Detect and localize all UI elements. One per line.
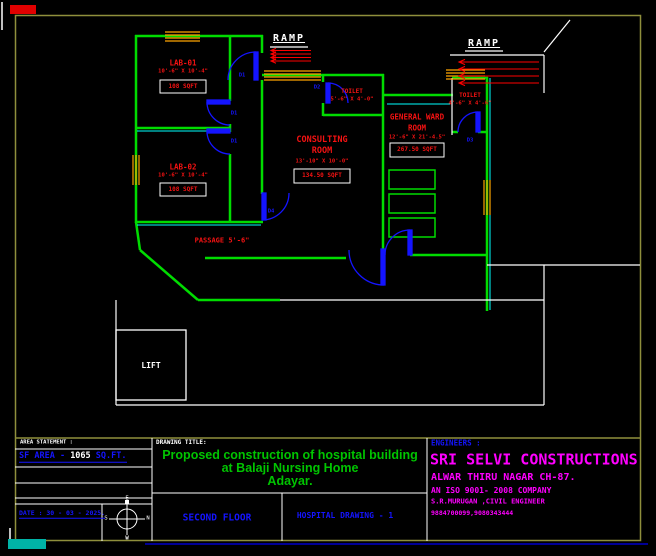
toilet-left-dims: 5'-6" X 4'-0" [330,97,373,103]
consulting-name-1: CONSULTING [296,136,347,145]
door-tag-d1b: D1 [231,139,238,145]
sf-area-value: 1065 [70,451,90,461]
ward-name-2: ROOM [408,124,426,132]
door-tag-d3: D3 [467,138,474,144]
sf-area-suffix: SQ.FT. [91,451,127,461]
drawing-title-label: DRAWING TITLE: [156,440,207,446]
door-tag-d1a: D1 [231,111,238,117]
floor-label: SECOND FLOOR [183,513,252,523]
door-tag-d2: D2 [314,85,321,91]
lab01-area: 108 SQFT [169,84,198,90]
lift-label: LIFT [141,362,160,370]
drawing-title-line1: Proposed construction of hospital buildi… [162,449,418,462]
plan-white-lines [116,20,640,405]
ramp2-label: RAMP [468,39,500,49]
lab01-dims: 10'-6" X 10'-4" [158,69,208,75]
company-phone: 9884700099,9080343444 [431,510,513,517]
engineers-label: ENGINEERS : [431,439,481,447]
consulting-name-2: ROOM [312,147,332,156]
consulting-dims: 13'-10" X 10'-0" [296,159,349,165]
compass-w-label: W [125,536,128,542]
company-iso: AN ISO 9001- 2008 COMPANY [431,487,551,495]
consulting-area: 134.50 SQFT [302,173,342,179]
toilet-right-dims: 4'-6" X 4'-6" [448,101,491,107]
compass-rose [109,500,145,535]
sf-area-prefix: SF AREA - [19,451,70,461]
compass-n-label: N [146,516,149,522]
toilet-left-name: TOILET [341,89,363,95]
passage-label: PASSAGE 5'-6" [195,238,250,245]
edge-artifact-lines [2,2,10,547]
sf-area-line: SF AREA - 1065 SQ.FT. [19,452,127,463]
lab02-dims: 10'-6" X 10'-4" [158,173,208,179]
ward-area: 267.50 SQFT [397,147,437,153]
cad-sheet: RAMP RAMP LAB-01 10'-6" X 10'-4" 108 SQF… [0,0,656,556]
toilet-right-name: TOILET [459,93,481,99]
compass-e-label: E [125,496,128,502]
area-statement-label: AREA STATEMENT : [20,440,73,446]
lab02-name: LAB-02 [169,163,196,171]
date-label: DATE : 30 - 03 - 2025. [19,510,105,519]
cyan-tag-marker [8,539,46,549]
company-engineer: S.R.MURUGAN ,CIVIL ENGINEER [431,499,545,506]
company-address: ALWAR THIRU NAGAR CH-87. [431,473,576,483]
ward-beds [389,170,435,237]
red-tag-marker [10,5,36,14]
lab02-area: 108 SQFT [169,187,198,193]
ward-dims: 12'-6" X 21'-4.5" [389,135,445,141]
company-name: SRI SELVI CONSTRUCTIONS [430,453,638,468]
drawing-title-line3: Adayar. [267,475,312,488]
drawing-title-line2: at Balaji Nursing Home [222,462,359,475]
door-tag-d4: D4 [268,209,275,215]
door-tag-d1c: D1 [239,73,246,79]
ramp1-label: RAMP [273,34,305,44]
ward-name-1: GENERAL WARD [390,113,444,121]
lab01-name: LAB-01 [169,59,196,67]
drawing-number: HOSPITAL DRAWING - 1 [297,512,393,520]
compass-s-label: S [104,516,107,522]
